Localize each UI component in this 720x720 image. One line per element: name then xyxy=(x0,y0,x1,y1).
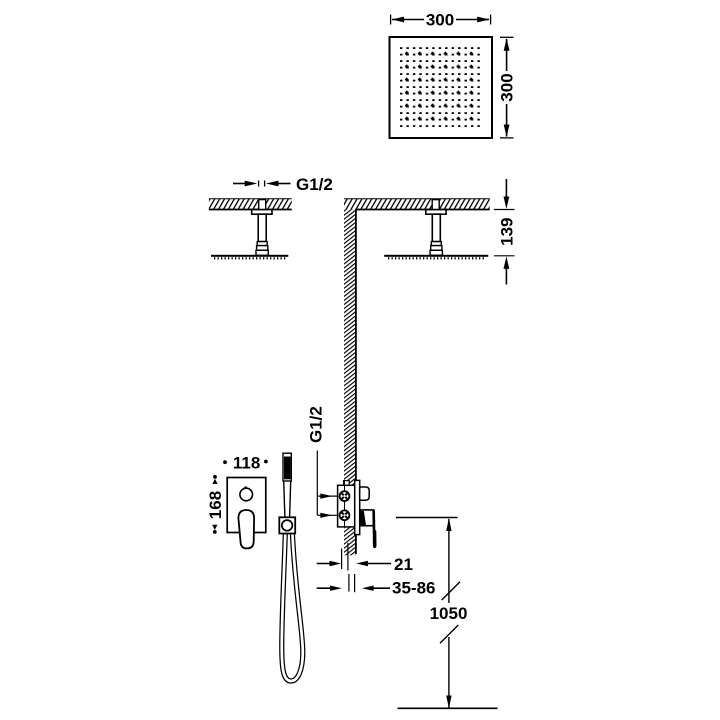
svg-text:G1/2: G1/2 xyxy=(296,175,333,194)
svg-text:1050: 1050 xyxy=(430,604,468,623)
svg-text:G1/2: G1/2 xyxy=(307,406,326,443)
svg-text:21: 21 xyxy=(394,555,413,574)
svg-text:168: 168 xyxy=(206,491,225,519)
svg-text:300: 300 xyxy=(498,73,517,101)
svg-text:118: 118 xyxy=(233,454,260,473)
svg-text:35-86: 35-86 xyxy=(392,579,435,598)
svg-text:300: 300 xyxy=(426,11,454,30)
svg-text:139: 139 xyxy=(498,218,517,246)
